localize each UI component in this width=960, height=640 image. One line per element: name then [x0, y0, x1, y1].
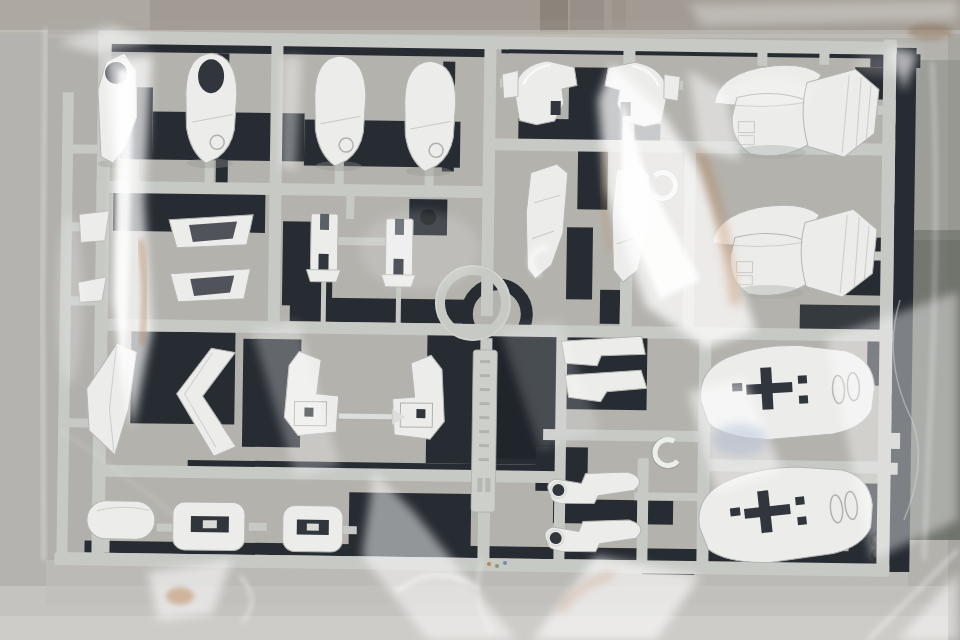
parts-shape	[318, 254, 328, 271]
light-runner-shape	[480, 402, 490, 405]
light-runner-shape	[485, 478, 490, 492]
bag-highlights-shape	[908, 24, 952, 40]
light-runner-shape	[757, 40, 767, 66]
parts-shape	[799, 395, 808, 403]
part-connector-rod	[338, 413, 392, 420]
bag-highlights-shape	[495, 564, 499, 568]
bag-highlights-shape	[487, 562, 491, 566]
part-capsule-1	[87, 501, 156, 540]
light-runner-shape	[819, 41, 829, 65]
light-runner-shape	[62, 144, 102, 154]
parts-shape	[730, 507, 741, 516]
bag-highlights-shape	[503, 561, 507, 565]
screenshot: Scanned photo: injection-molded model ki…	[0, 0, 960, 640]
part-small-left-1	[79, 210, 109, 242]
scene-svg	[0, 0, 960, 640]
photo-frame	[0, 0, 960, 640]
light-runner-shape	[479, 430, 489, 433]
light-runner-shape	[480, 388, 490, 391]
part-flange-right	[664, 75, 680, 101]
light-runner-shape	[479, 444, 489, 447]
parts-shape	[795, 496, 805, 505]
parts-shape	[203, 520, 217, 528]
light-runner-shape	[636, 458, 649, 570]
parts-shape	[797, 516, 807, 525]
bag-highlights-shape	[728, 76, 812, 108]
bag-highlights-shape	[166, 587, 194, 605]
parts-shape	[416, 409, 425, 418]
part-flange-left	[502, 70, 518, 98]
light-runner-shape	[634, 492, 698, 501]
light-runner-shape	[479, 458, 489, 461]
light-runner-shape	[477, 478, 482, 492]
dark-runner-shape	[600, 290, 620, 324]
bag-highlights-shape	[712, 424, 768, 456]
light-runner-shape	[346, 193, 354, 219]
light-runner-shape	[249, 523, 267, 531]
parts-shape	[798, 375, 807, 383]
parts-shape	[760, 367, 773, 410]
parts-shape	[551, 101, 561, 115]
light-runner-shape	[479, 416, 489, 419]
parts-shape	[307, 524, 319, 531]
bag-highlights-shape	[57, 215, 83, 385]
dark-runner-shape	[566, 227, 593, 299]
bag-highlights-shape	[360, 210, 480, 290]
parts-shape	[320, 214, 329, 230]
light-runner-shape	[321, 276, 327, 324]
light-runner-shape	[480, 374, 490, 377]
parts-shape	[306, 270, 340, 282]
light-runner-shape	[480, 360, 490, 363]
